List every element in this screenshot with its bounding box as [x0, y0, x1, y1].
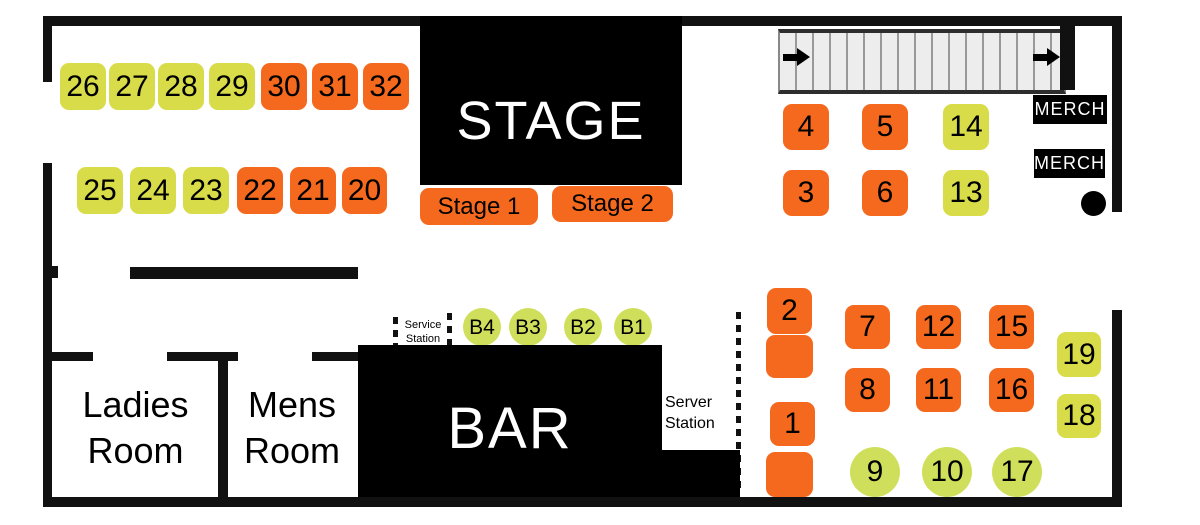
table-26[interactable]: 26 — [60, 63, 106, 110]
wall-left-upper — [43, 16, 52, 82]
table-B4[interactable]: B4 — [463, 308, 501, 346]
merch-stand: MERCH — [1034, 149, 1105, 178]
wall-right-upper — [1112, 16, 1122, 212]
table-7[interactable]: 7 — [845, 305, 890, 349]
stairs-direction-arrow-icon — [1033, 48, 1060, 66]
arrow-shaft — [783, 54, 797, 61]
table-8[interactable]: 8 — [845, 368, 890, 412]
table-1[interactable]: 1 — [770, 402, 815, 446]
bar-label: BAR — [447, 395, 572, 462]
stage-1-label: Stage 1 — [438, 193, 521, 221]
mens-room-line1: Mens — [226, 382, 358, 428]
table-unlabeled[interactable] — [766, 452, 813, 497]
arrow-head — [797, 48, 810, 66]
staircase-end-wall — [1060, 16, 1075, 90]
server-station-counter — [662, 450, 740, 497]
table-3[interactable]: 3 — [783, 170, 829, 216]
table-18[interactable]: 18 — [1057, 394, 1101, 438]
table-6[interactable]: 6 — [862, 170, 908, 216]
server-station-line1: Server — [665, 392, 735, 413]
merch-label: MERCH — [1035, 99, 1106, 120]
table-B3[interactable]: B3 — [509, 308, 547, 346]
arrow-head — [1047, 48, 1060, 66]
stage-label: STAGE — [456, 90, 645, 152]
wall-restroom-top-a — [46, 352, 93, 361]
table-13[interactable]: 13 — [943, 170, 989, 216]
table-27[interactable]: 27 — [109, 63, 155, 110]
stage-2-label: Stage 2 — [571, 190, 654, 218]
stage-2-button[interactable]: Stage 2 — [552, 186, 673, 222]
ladies-room-line2: Room — [53, 428, 218, 474]
merch-label: MERCH — [1034, 153, 1105, 174]
server-station-label: Server Station — [665, 392, 735, 434]
table-25[interactable]: 25 — [77, 167, 123, 214]
mens-room-label: Mens Room — [226, 382, 358, 474]
table-17[interactable]: 17 — [992, 447, 1042, 497]
table-unlabeled[interactable] — [766, 335, 813, 378]
stairs-direction-arrow-icon — [783, 48, 810, 66]
table-15[interactable]: 15 — [989, 305, 1034, 349]
table-20[interactable]: 20 — [342, 167, 387, 214]
stage-area: STAGE — [420, 16, 682, 185]
table-2[interactable]: 2 — [767, 288, 812, 334]
table-11[interactable]: 11 — [916, 368, 961, 412]
post-column — [1081, 191, 1106, 216]
staircase — [778, 29, 1066, 94]
bar-area: BAR — [358, 345, 662, 497]
table-22[interactable]: 22 — [237, 167, 283, 214]
table-B1[interactable]: B1 — [614, 308, 652, 346]
wall-restroom-top-c — [312, 352, 358, 361]
wall-right-lower — [1112, 310, 1122, 507]
ladies-room-line1: Ladies — [53, 382, 218, 428]
wall-mid-divider — [130, 267, 358, 279]
table-5[interactable]: 5 — [862, 104, 908, 150]
service-station-line2: Station — [399, 332, 447, 346]
table-B2[interactable]: B2 — [564, 308, 602, 346]
wall-left-doorstop — [49, 266, 58, 278]
table-16[interactable]: 16 — [989, 368, 1034, 412]
table-29[interactable]: 29 — [209, 63, 255, 110]
server-station-line2: Station — [665, 413, 735, 434]
table-12[interactable]: 12 — [916, 305, 961, 349]
arrow-shaft — [1033, 54, 1047, 61]
table-24[interactable]: 24 — [130, 167, 176, 214]
mens-room-line2: Room — [226, 428, 358, 474]
table-14[interactable]: 14 — [943, 104, 989, 150]
table-21[interactable]: 21 — [290, 167, 336, 214]
table-4[interactable]: 4 — [783, 104, 829, 150]
table-10[interactable]: 10 — [922, 447, 972, 497]
venue-floor-plan: STAGE Stage 1 Stage 2 MERCH MERCH BAR Se… — [0, 0, 1200, 525]
table-31[interactable]: 31 — [312, 63, 358, 110]
table-32[interactable]: 32 — [363, 63, 409, 110]
table-28[interactable]: 28 — [158, 63, 204, 110]
table-30[interactable]: 30 — [261, 63, 307, 110]
service-station-label: Service Station — [399, 318, 447, 346]
table-23[interactable]: 23 — [183, 167, 229, 214]
merch-stand: MERCH — [1033, 95, 1107, 124]
wall-left-lower — [43, 163, 52, 507]
stage-1-button[interactable]: Stage 1 — [420, 188, 538, 225]
ladies-room-label: Ladies Room — [53, 382, 218, 474]
service-station-line1: Service — [399, 318, 447, 332]
table-19[interactable]: 19 — [1057, 332, 1101, 377]
wall-bottom — [43, 497, 1122, 507]
table-9[interactable]: 9 — [850, 447, 900, 497]
